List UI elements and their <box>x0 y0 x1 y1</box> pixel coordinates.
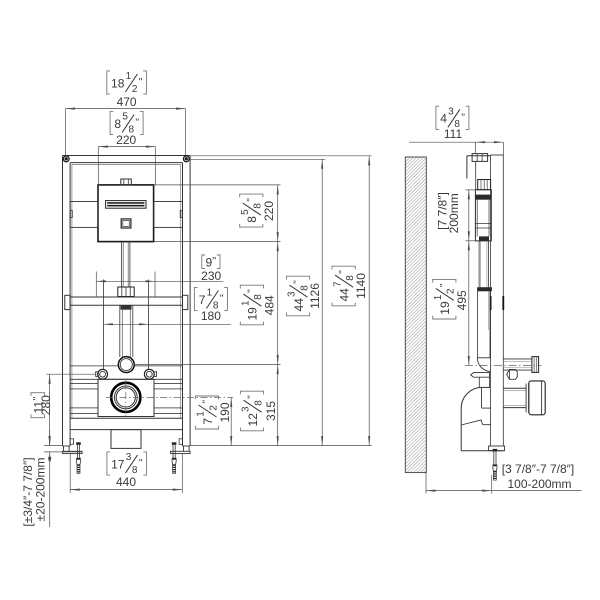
svg-text:1: 1 <box>207 288 213 299</box>
svg-text:": " <box>461 111 465 123</box>
svg-text:": " <box>139 457 143 469</box>
svg-text:7: 7 <box>332 281 343 287</box>
svg-text:7: 7 <box>199 293 206 307</box>
svg-text:190: 190 <box>218 402 232 422</box>
svg-text:2: 2 <box>132 84 138 95</box>
svg-text:1: 1 <box>433 294 444 300</box>
svg-text:1: 1 <box>241 300 252 306</box>
svg-text:1140: 1140 <box>354 273 368 299</box>
svg-text:484: 484 <box>262 295 276 315</box>
svg-text:44: 44 <box>337 288 351 302</box>
svg-text:315: 315 <box>264 401 278 421</box>
svg-text:470: 470 <box>117 95 137 109</box>
svg-text:19: 19 <box>438 301 452 315</box>
svg-text:8: 8 <box>245 216 259 223</box>
svg-text:3: 3 <box>448 107 454 118</box>
svg-text:18: 18 <box>111 76 125 90</box>
svg-text:": " <box>201 400 213 404</box>
svg-text:": " <box>246 395 258 399</box>
svg-text:100-200mm: 100-200mm <box>508 477 572 491</box>
svg-text:": " <box>245 198 257 202</box>
svg-text:[3 7/8″-7 7/8″]: [3 7/8″-7 7/8″] <box>502 462 575 476</box>
svg-text:7: 7 <box>201 418 215 425</box>
svg-text:": " <box>220 293 224 305</box>
svg-text:220: 220 <box>262 201 276 221</box>
svg-text:8: 8 <box>253 400 264 406</box>
svg-text:111: 111 <box>444 127 463 141</box>
svg-text:3: 3 <box>126 452 132 463</box>
svg-text:440: 440 <box>116 475 136 489</box>
svg-text:1: 1 <box>126 71 132 82</box>
svg-text:": " <box>212 255 216 267</box>
svg-text:200mm: 200mm <box>447 193 461 233</box>
svg-text:": " <box>438 283 450 287</box>
svg-text:495: 495 <box>455 290 469 310</box>
svg-text:1: 1 <box>196 411 207 417</box>
svg-text:": " <box>337 270 349 274</box>
svg-text:": " <box>245 289 257 293</box>
svg-text:17: 17 <box>111 457 125 471</box>
svg-text:3: 3 <box>287 291 298 297</box>
svg-text:": " <box>292 280 304 284</box>
svg-text:220: 220 <box>116 133 136 147</box>
svg-text:8: 8 <box>114 117 121 131</box>
svg-text:5: 5 <box>240 209 251 215</box>
svg-text:±20-200mm: ±20-200mm <box>34 458 48 522</box>
svg-text:280: 280 <box>39 395 53 415</box>
svg-text:": " <box>139 76 143 88</box>
svg-text:12: 12 <box>246 413 260 427</box>
svg-text:4: 4 <box>440 112 447 126</box>
svg-text:44: 44 <box>292 298 306 312</box>
svg-text:5: 5 <box>122 112 128 123</box>
svg-text:230: 230 <box>201 269 221 283</box>
svg-text:": " <box>135 117 139 129</box>
svg-text:1126: 1126 <box>308 283 322 309</box>
svg-text:3: 3 <box>241 406 252 412</box>
svg-text:180: 180 <box>201 309 221 323</box>
svg-text:19: 19 <box>246 307 260 321</box>
